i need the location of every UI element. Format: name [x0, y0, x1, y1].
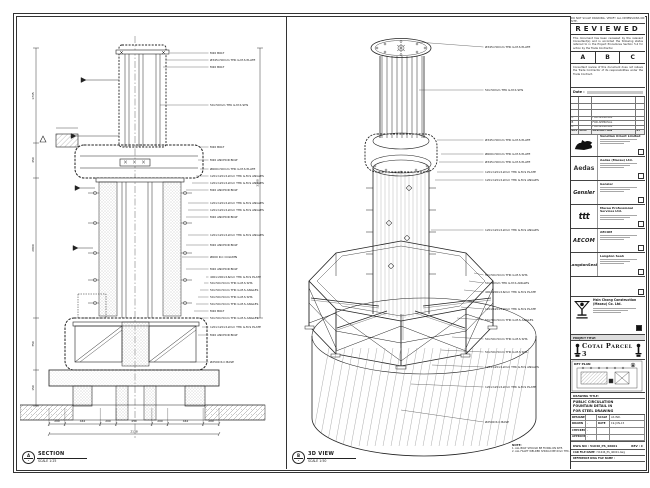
project-name: Cotai Parcel 3 [582, 342, 634, 358]
langdon-logo-text: LangdonSeah [571, 262, 598, 267]
reviewed-stamp: REVIEWED This document has been reviewed… [571, 24, 645, 88]
revision-cell [636, 110, 645, 116]
stamp-address-line [600, 191, 624, 192]
annotation-label: Ø345×50mm THK G.M.S PLATE [210, 57, 255, 62]
annotation-label: M20 ANCHOR BOLT [210, 333, 238, 337]
annotation-label: 120×120×12mm THK G.M.S ANGLES [485, 228, 539, 232]
gensler-logo-text: Gensler [573, 190, 595, 196]
drawing-title-line: FOR STEEL DRAWING [573, 409, 643, 413]
annotation-label: 444 [183, 419, 189, 423]
annotation-label: M20 BOLT [210, 309, 225, 313]
revision-cell: FOR APPROVAL [592, 126, 636, 129]
title-block: DO NOT SCALE DRAWING. VERIFY ALL DIMENSI… [571, 16, 645, 470]
stamp-row-gensler: GenslerGensler [571, 181, 645, 205]
field-cell [597, 428, 610, 435]
contractor-block: Hsin Chong Construction (Macau) Co. Ltd. [571, 297, 645, 335]
reviewed-paragraph-1: This document has been reviewed by the r… [571, 35, 645, 51]
annotation-label: M20 BOLT [210, 51, 225, 55]
revision-cell [592, 97, 636, 103]
field-cell [610, 428, 645, 435]
annotation-label: 3300 [256, 179, 260, 187]
annotation-label: 400×200×16mm THK G.M.S PLATE [485, 290, 536, 294]
stamp-row-aecom: AECOMAECOM [571, 229, 645, 253]
stamp-address-line [600, 165, 630, 166]
revision-cell: DATE [579, 130, 592, 133]
annotation-label: 1745 [31, 92, 35, 100]
revision-cell: B [571, 121, 579, 124]
status-option-a: A [571, 52, 596, 63]
annotation-label: 750 [31, 341, 35, 347]
revision-cell [579, 110, 592, 116]
rev-value: C [641, 444, 643, 448]
annotation-label: 50×50×5mm THK G.M.S SHS [485, 337, 528, 341]
annotation-label: 120×120×12mm THK G.M.S ANGLES [210, 233, 264, 237]
contractor-logo-icon [573, 299, 591, 332]
stamp-row-venetian-orient-limited: Venetian Orient Limited [571, 133, 645, 157]
annotation-label: 50×50×5mm THK G.M.S SHS [210, 281, 253, 285]
banner-ornament-icon [634, 343, 643, 358]
revision-cell [636, 126, 645, 129]
stamp-info: Venetian Orient Limited [598, 133, 645, 156]
revision-cell: FOR APPROVAL [592, 117, 636, 120]
stamp-row-aedas-macau-ltd-: AedasAedas (Macau) Ltd. [571, 157, 645, 181]
aecom-logo-icon: AECOM [571, 229, 598, 252]
reviewed-status-options: A B C [571, 51, 645, 64]
drawing-sheet: M20 BOLTØ345×50mm THK G.M.S PLATEM20 BOL… [13, 13, 649, 473]
leader-line [469, 281, 484, 283]
field-cell [610, 435, 645, 442]
revision-cell: A [571, 126, 579, 129]
project-banner: Cotai Parcel 3 [571, 341, 645, 360]
stamp-address-line [600, 139, 637, 140]
annotation-label: 120×120×12mm THK G.M.S ANGLES [210, 208, 264, 212]
annotation-label: 2800 [31, 244, 35, 252]
status-option-b: B [596, 52, 621, 63]
reviewed-title: REVIEWED [571, 24, 645, 35]
stamp-address-line [600, 259, 637, 260]
leader-line [461, 307, 484, 309]
leader-line [441, 350, 484, 352]
field-cell [597, 435, 610, 442]
field-cell: DATE [597, 421, 610, 428]
annotation-label: 450 [131, 419, 137, 423]
revision-cell [571, 110, 579, 116]
dwg-number-row: DWG NO : 51646_PS_46001 REV : C [571, 442, 645, 450]
annotation-label: 50×50×5mm THK G.M.S SHS [485, 273, 528, 277]
revision-row [571, 97, 645, 104]
contractor-address-line [593, 310, 628, 311]
stamp-info: Aedas (Macau) Ltd. [598, 157, 645, 180]
annotation-label: Ø345×50mm THK G.M.S PLATE [485, 159, 530, 164]
revision-cell [592, 104, 636, 110]
field-cell [586, 415, 597, 422]
leader-line [401, 410, 484, 422]
contractor-address-line [593, 312, 621, 313]
annotation-label: 2138 [130, 430, 138, 434]
stamp-address-line [600, 219, 624, 220]
annotation-label: 50×50×5mm THK G.M.S ANGLES [210, 316, 258, 320]
stamp-address-line [600, 235, 637, 236]
stamp-checkbox [638, 221, 644, 227]
field-cell: DRAWN [571, 421, 586, 428]
cad-file-name: 51646_PS_46001.dwg [597, 451, 625, 454]
annotation-label: 50×50×5mm THK G.M.S ANGLES [485, 318, 533, 322]
stamp-checkbox [638, 289, 644, 295]
section-title-text: SECTION [37, 451, 87, 459]
stamp-address-line [600, 189, 630, 190]
stamp-address-line [600, 141, 630, 142]
annotation-label: Ø600×50mm THK G.M.S PLATE [210, 166, 255, 171]
annotation-label: 200 [54, 419, 60, 423]
annotation-label: 50×50×5mm THK G.M.S ANGLES [210, 288, 258, 292]
annotation-label: 50×50mm THK G.M.S SHS [210, 103, 248, 107]
stamp-address-line [600, 237, 630, 238]
annotation-label: M20 ANCHOR BOLT [210, 188, 238, 192]
gensler-logo-icon: Gensler [571, 181, 598, 204]
section-scale-text: SCALE 1:25 [37, 459, 87, 463]
annotation-label: M20 ANCHOR BOLT [210, 267, 238, 271]
field-cell: - [586, 421, 597, 428]
reference-row: REFERENCE DWG FILE NAME : [571, 456, 645, 462]
annotation-label: 120×120×12mm THK G.M.S ANGLES [210, 174, 264, 178]
dwg-number: 51646_PS_46001 [590, 444, 617, 448]
leader-line [464, 290, 484, 292]
stamp-company-name: Venetian Orient Limited [600, 135, 643, 138]
annotation-label: 120×120×12mm THK G.M.S PLATE [485, 307, 536, 311]
panel-divider-1 [286, 17, 287, 469]
field-cell: AS IND. [610, 415, 645, 422]
dwg-label: DWG NO : [573, 444, 589, 448]
revision-cell [579, 126, 592, 129]
revision-cell [636, 97, 645, 103]
annotation-label: Ø345×50mm THK G.M.S PLATE [485, 44, 530, 49]
reference-label: REFERENCE DWG FILE NAME : [573, 457, 615, 460]
iso-view-drawing: Ø345×50mm THK G.M.S PLATE50×50mm THK G.M… [289, 18, 574, 458]
stamp-company-name: AECOM [600, 231, 643, 234]
stamp-company-name: Aedas (Macau) Ltd. [600, 159, 643, 162]
stamp-address-line [600, 143, 624, 144]
revision-cell [636, 104, 645, 110]
annotation-label: M20 ANCHOR BOLT [210, 215, 238, 219]
iso-bubble-sub: - [294, 458, 303, 462]
field-cell: APPROVED [571, 435, 586, 442]
revision-cell [636, 121, 645, 124]
stamp-checkbox [638, 149, 644, 155]
stamp-address-line [600, 261, 630, 262]
annotation-label: 120×120×12mm THK G.M.S ANGLES [485, 365, 539, 369]
stamp-row-macau-professional-services-ltd-: tttMacau Professional Services Ltd. [571, 205, 645, 229]
annotation-label: 200 [105, 419, 111, 423]
revision-cell [579, 121, 592, 124]
contractor-mark [636, 325, 642, 331]
stamp-address-line [600, 215, 637, 216]
annotation-label: 444 [80, 419, 86, 423]
annotation-label: 50×50mm THK G.M.S ANGLES [485, 281, 529, 285]
stamp-checkbox [638, 197, 644, 203]
revision-cell: REV [571, 130, 579, 133]
annotation-label: 400×200×16mm THK G.M.S PLATE [210, 275, 261, 279]
stamp-row-langdon-seah: LangdonSeahLangdon Seah [571, 253, 645, 277]
field-cell: DESIGNED [571, 415, 586, 422]
stamp-address-line [600, 167, 624, 168]
date-row: Date : [571, 88, 645, 97]
stamp-address-line [600, 263, 624, 264]
date-label: Date : [573, 90, 585, 94]
revision-cell [592, 110, 636, 116]
stamp-info: Macau Professional Services Ltd. [598, 205, 645, 228]
field-cell: - [586, 435, 597, 442]
contractor-address-line [593, 308, 636, 309]
stamp-address-line [600, 187, 637, 188]
section-view-title: A - SECTION SCALE 1:25 [22, 451, 87, 464]
iso-title-text: 3D VIEW [307, 451, 356, 459]
annotation-label: 120×120×12mm THK G.M.S ANGLES [210, 201, 264, 205]
field-cell: SCALE [597, 415, 610, 422]
revision-cell [636, 117, 645, 120]
annotation-label: 150 [31, 385, 35, 391]
stamp-address-line [600, 217, 630, 218]
ttt-logo-text: ttt [579, 212, 590, 222]
drawing-title-block: DRAWING TITLE: PUBLIC CIRCULATION FOUNTA… [571, 393, 645, 470]
revision-cell [571, 104, 579, 110]
do-not-scale-strip: DO NOT SCALE DRAWING. VERIFY ALL DIMENSI… [571, 16, 645, 24]
leader-line [417, 42, 484, 47]
annotation-label: 50×50×5mm THK G.M.S ANGLES [210, 302, 258, 306]
fields-grid: DESIGNEDSCALEAS IND.DRAWN-DATE19-JUN-15C… [571, 415, 645, 442]
revision-table: CFOR APPROVALBFOR APPROVALAFOR APPROVALR… [571, 97, 645, 133]
annotation-label: Ø2500 R.C BASE [210, 359, 234, 364]
stamp-info: Langdon Seah [598, 253, 645, 276]
rev-label: REV : [631, 444, 640, 448]
revision-row [571, 110, 645, 117]
revision-cell: C [571, 117, 579, 120]
annotation-label: 50×50mm THK G.M.S SHS [485, 88, 523, 92]
annotation-label: Ø600×50mm THK G.M.S PLATE [485, 151, 530, 156]
revision-cell [579, 117, 592, 120]
annotation-label: M20 BOLT [210, 65, 225, 69]
annotation-label: 450 [31, 157, 35, 163]
key-plan-label: KEY PLAN [574, 362, 591, 366]
leader-line [411, 384, 484, 387]
annotation-label: Ø2500 R.C BASE [485, 419, 509, 424]
annotation-label: 120×120×12mm THK G.M.S PLATE [485, 170, 536, 174]
stamp-company-name: Langdon Seah [600, 255, 643, 258]
iso-scale-text: SCALE 1:50 [307, 459, 356, 463]
status-option-c: C [620, 52, 645, 63]
revision-cell: FOR APPROVAL [592, 121, 636, 124]
annotation-label: 200 [157, 419, 163, 423]
banner-ornament-icon [573, 343, 582, 358]
section-bubble-icon: A - [22, 451, 35, 464]
stamp-company-name: Gensler [600, 183, 643, 186]
reviewed-paragraph-2: Consultant review of this document does … [571, 64, 645, 77]
field-cell: - [586, 428, 597, 435]
field-cell: 19-JUN-15 [610, 421, 645, 428]
date-fill-line [587, 91, 643, 94]
aecom-logo-text: AECOM [573, 238, 595, 244]
revision-cell [579, 104, 592, 110]
section-view-drawing: M20 BOLTØ345×50mm THK G.M.S PLATEM20 BOL… [20, 18, 285, 458]
annotation-label: 120×120×12mm THK G.M.S PLATE [485, 385, 536, 389]
empty-stamp-row [571, 277, 645, 297]
stamp-info: Gensler [598, 181, 645, 204]
revision-cell [579, 97, 592, 103]
stamp-address-line [600, 163, 637, 164]
annotation-label: 200 [208, 419, 214, 423]
field-cell: CHECKED [571, 428, 586, 435]
cad-file-label: CAD FILE NAME : [573, 451, 597, 454]
aedas-logo-icon: Aedas [571, 157, 598, 180]
venetian-logo-icon [571, 133, 598, 156]
annotation-label: 50×50×5mm THK G.M.S SHS [485, 350, 528, 354]
stamp-checkbox [638, 173, 644, 179]
stamp-company-name: Macau Professional Services Ltd. [600, 207, 643, 214]
revision-cell [571, 97, 579, 103]
annotation-label: M20 ANCHOR BOLT [210, 243, 238, 247]
annotation-label: 50×50×5mm THK G.M.S SHS [210, 295, 253, 299]
revision-row [571, 104, 645, 111]
annotation-label: 120×120×12mm THK G.M.S ANGLES [485, 178, 539, 182]
annotation-label: M20 BOLT [210, 145, 225, 149]
stamp-address-line [600, 239, 624, 240]
contractor-name: Hsin Chong Construction (Macau) Co. Ltd. [593, 299, 643, 306]
langdon-logo-icon: LangdonSeah [571, 253, 598, 276]
section-bubble-sub: - [24, 458, 33, 462]
iso-view-title: B - 3D VIEW SCALE 1:50 [292, 451, 356, 464]
annotation-label: Ø600 R.C COLUMN [210, 254, 237, 259]
leader-line [452, 337, 484, 339]
stamp-checkbox [638, 269, 644, 275]
stamp-checkbox [638, 245, 644, 251]
ttt-logo-icon: ttt [571, 205, 598, 228]
annotation-label: 120×120×12mm THK G.M.S PLATE [210, 325, 261, 329]
key-plan: KEY PLAN [571, 360, 645, 393]
drawing-title: PUBLIC CIRCULATION FOUNTAIN DETAIL IN FO… [571, 399, 645, 415]
iso-bubble-icon: B - [292, 451, 305, 464]
annotation-label: Ø345×50mm THK G.M.S PLATE [485, 137, 530, 142]
aedas-logo-text: Aedas [574, 165, 595, 172]
consultant-stamps: Venetian Orient LimitedAedasAedas (Macau… [571, 133, 645, 277]
leader-line [432, 365, 484, 367]
annotation-label: M20 ANCHOR BOLT [210, 158, 238, 162]
stamp-info: AECOM [598, 229, 645, 252]
